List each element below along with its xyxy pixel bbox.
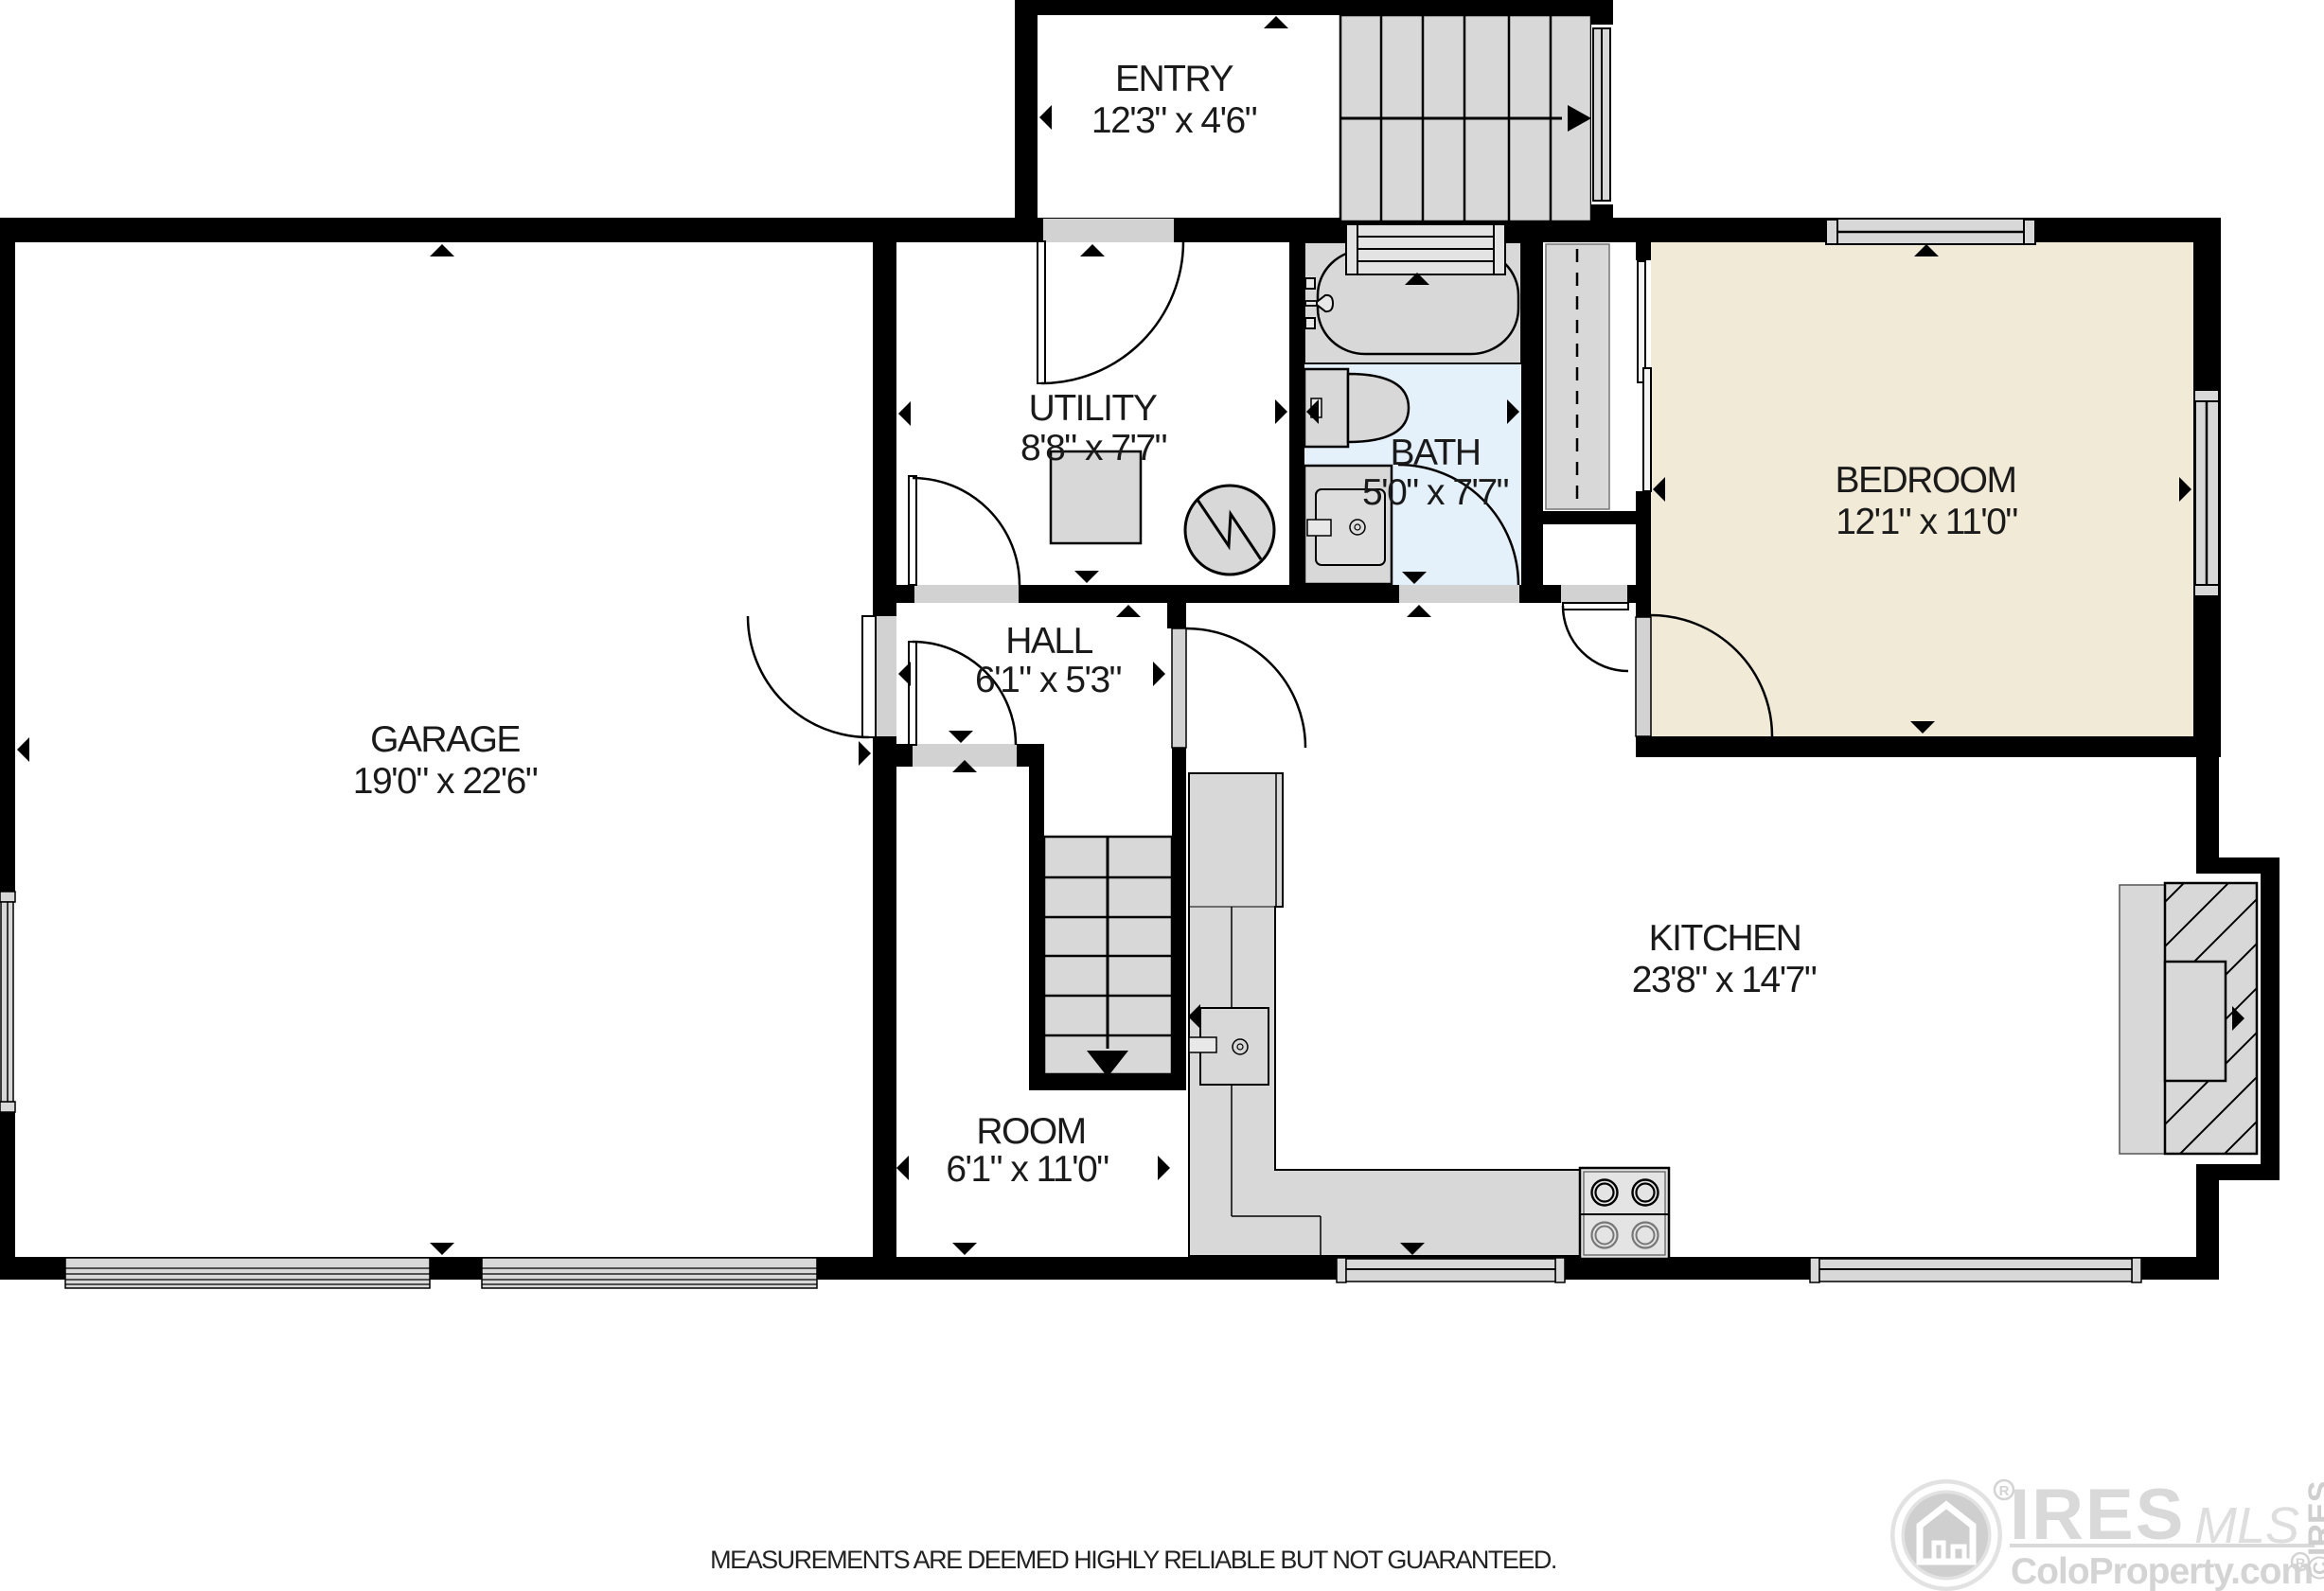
svg-text:IRES: IRES (2010, 1475, 2185, 1555)
svg-text:12'3" x 4'6": 12'3" x 4'6" (1091, 100, 1257, 141)
svg-text:KITCHEN: KITCHEN (1649, 918, 1801, 959)
svg-text:R: R (1999, 1483, 2010, 1499)
svg-text:12'1" x 11'0": 12'1" x 11'0" (1836, 502, 2017, 542)
svg-text:HALL: HALL (1005, 621, 1092, 662)
svg-text:6'1" x 11'0": 6'1" x 11'0" (946, 1149, 1109, 1190)
svg-text:MEASUREMENTS ARE DEEMED HIGHLY: MEASUREMENTS ARE DEEMED HIGHLY RELIABLE … (710, 1546, 1556, 1574)
svg-text:8'8" x 7'7": 8'8" x 7'7" (1020, 428, 1167, 468)
svg-text:ROOM: ROOM (976, 1111, 1085, 1152)
svg-text:BEDROOM: BEDROOM (1835, 460, 2015, 501)
svg-text:BATH: BATH (1390, 433, 1480, 473)
svg-text:©IRES: ©IRES (2302, 1481, 2324, 1580)
svg-text:ColoProperty.com: ColoProperty.com (2011, 1551, 2313, 1591)
svg-text:6'1" x 5'3": 6'1" x 5'3" (975, 660, 1122, 700)
svg-text:5'0" x 7'7": 5'0" x 7'7" (1362, 472, 1509, 513)
svg-text:UTILITY: UTILITY (1029, 388, 1158, 429)
svg-text:19'0" x 22'6": 19'0" x 22'6" (353, 761, 538, 802)
svg-text:GARAGE: GARAGE (370, 719, 520, 760)
svg-text:23'8" x 14'7": 23'8" x 14'7" (1632, 960, 1817, 1000)
svg-text:ENTRY: ENTRY (1115, 59, 1233, 99)
